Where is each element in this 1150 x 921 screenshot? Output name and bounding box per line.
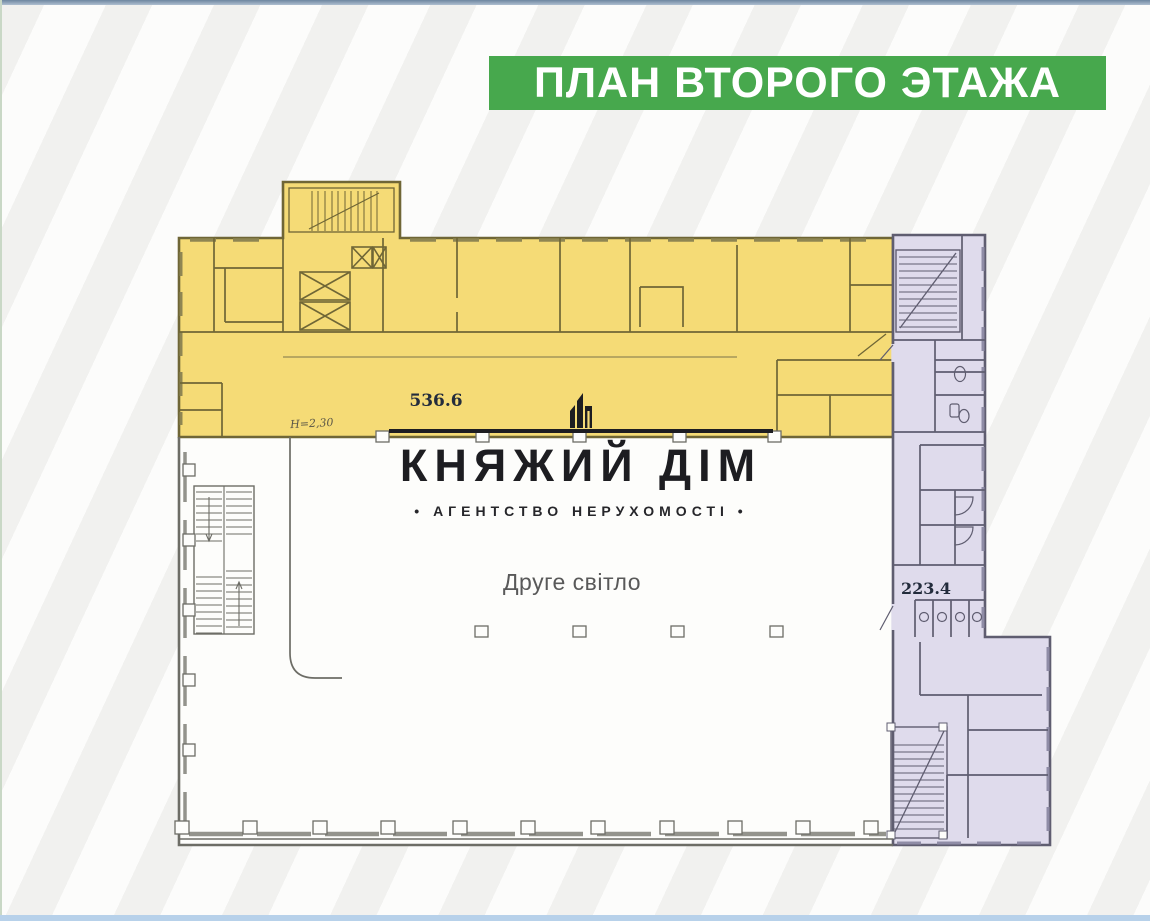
page-title: ПЛАН ВТОРОГО ЭТАЖА [534, 62, 1061, 105]
agency-logo: КНЯЖИЙ ДІМ • АГЕНТСТВО НЕРУХОМОСТІ • [389, 391, 773, 519]
area-label-purple: 223.4 [901, 579, 951, 598]
top-accent-bar [0, 0, 1150, 5]
atrium-label: Друге світло [503, 569, 641, 595]
logo-name: КНЯЖИЙ ДІМ [389, 440, 773, 492]
flyer-page: ПЛАН ВТОРОГО ЭТАЖА [0, 0, 1150, 921]
building-skyline-icon [566, 391, 596, 429]
logo-tagline: • АГЕНТСТВО НЕРУХОМОСТІ • [389, 503, 773, 519]
title-banner: ПЛАН ВТОРОГО ЭТАЖА [489, 56, 1106, 110]
left-accent-edge [0, 0, 2, 921]
purple-zone: 223.4 [880, 235, 1050, 845]
logo-divider [389, 429, 773, 433]
bottom-accent-bar [0, 915, 1150, 921]
ceiling-height-note: Н=2,30 [289, 416, 334, 431]
